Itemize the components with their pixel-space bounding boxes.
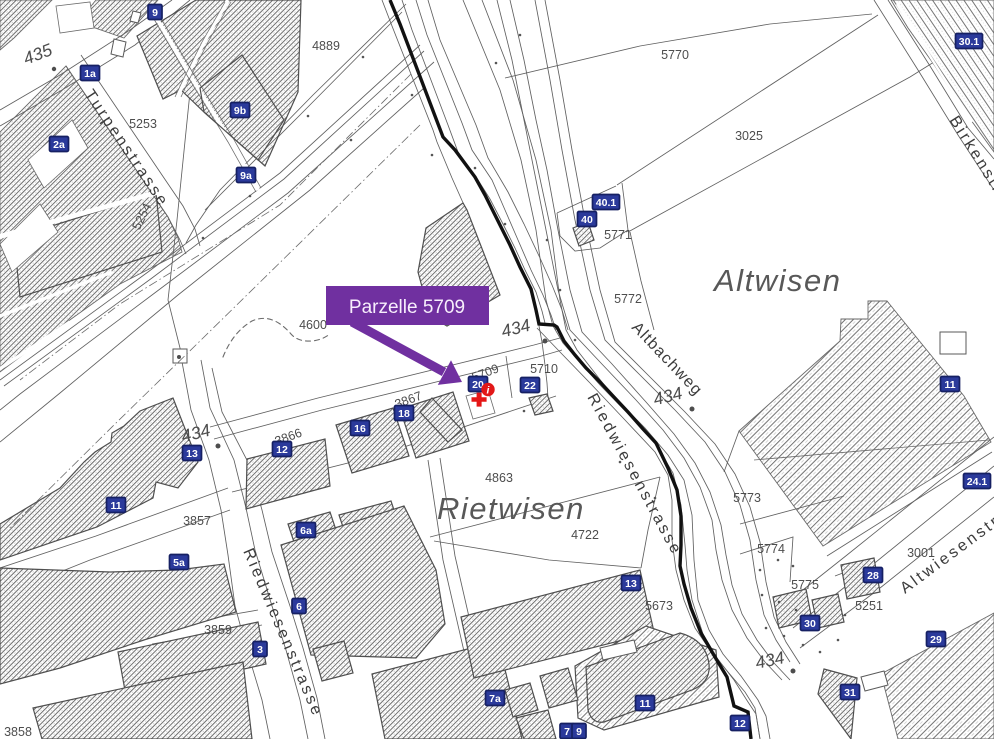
svg-text:2a: 2a — [53, 139, 65, 151]
svg-text:6: 6 — [296, 601, 302, 613]
svg-text:29: 29 — [930, 634, 942, 646]
svg-text:4889: 4889 — [312, 39, 340, 53]
svg-text:5775: 5775 — [791, 578, 819, 592]
svg-text:40.1: 40.1 — [596, 197, 617, 209]
svg-text:5251: 5251 — [855, 599, 883, 613]
svg-text:9: 9 — [152, 7, 158, 19]
svg-text:9a: 9a — [240, 170, 252, 182]
svg-text:5772: 5772 — [614, 292, 642, 306]
svg-text:40: 40 — [581, 214, 593, 226]
svg-text:3: 3 — [257, 644, 263, 656]
svg-text:1a: 1a — [84, 68, 96, 80]
svg-text:5771: 5771 — [604, 228, 632, 242]
svg-text:3859: 3859 — [204, 623, 232, 637]
svg-text:12: 12 — [734, 718, 746, 730]
svg-text:7a: 7a — [489, 693, 501, 705]
svg-text:28: 28 — [867, 570, 879, 582]
svg-text:16: 16 — [354, 423, 366, 435]
svg-text:5710: 5710 — [530, 362, 558, 376]
svg-text:13: 13 — [186, 448, 198, 460]
svg-text:3858: 3858 — [4, 725, 32, 739]
svg-text:3025: 3025 — [735, 129, 763, 143]
svg-text:11: 11 — [639, 698, 650, 710]
svg-text:4722: 4722 — [571, 528, 599, 542]
svg-text:30.1: 30.1 — [959, 36, 980, 48]
svg-text:24.1: 24.1 — [967, 476, 988, 488]
svg-text:4600: 4600 — [299, 318, 327, 332]
svg-text:3857: 3857 — [183, 514, 211, 528]
svg-text:5773: 5773 — [733, 491, 761, 505]
svg-text:7: 7 — [564, 726, 570, 738]
svg-text:5673: 5673 — [645, 599, 673, 613]
svg-text:5774: 5774 — [757, 542, 785, 556]
svg-text:11: 11 — [110, 500, 121, 512]
svg-text:5a: 5a — [173, 557, 185, 569]
svg-text:30: 30 — [804, 618, 816, 630]
svg-text:9b: 9b — [234, 105, 246, 117]
svg-text:11: 11 — [944, 379, 955, 391]
svg-text:13: 13 — [625, 578, 637, 590]
svg-text:18: 18 — [398, 408, 410, 420]
svg-text:22: 22 — [524, 380, 536, 392]
svg-text:Parzelle 5709: Parzelle 5709 — [349, 297, 465, 318]
svg-text:4863: 4863 — [485, 471, 513, 485]
svg-text:5770: 5770 — [661, 48, 689, 62]
svg-text:12: 12 — [276, 444, 288, 456]
svg-text:5253: 5253 — [129, 117, 157, 131]
svg-text:Rietwisen: Rietwisen — [437, 491, 585, 526]
svg-text:9: 9 — [576, 726, 582, 738]
svg-text:Altwisen: Altwisen — [712, 263, 841, 298]
svg-text:6a: 6a — [300, 525, 312, 537]
svg-text:31: 31 — [844, 687, 856, 699]
